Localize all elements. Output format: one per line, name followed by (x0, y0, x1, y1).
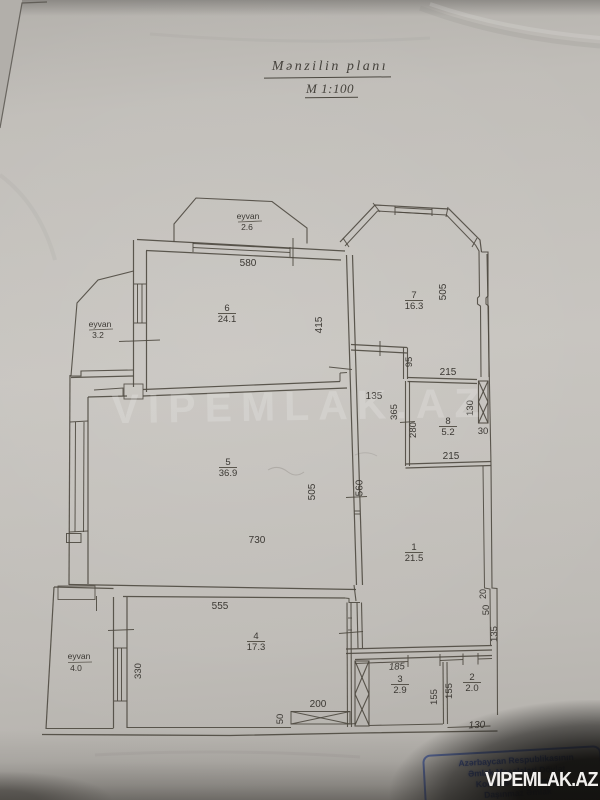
svg-text:6: 6 (224, 303, 229, 314)
svg-text:560: 560 (355, 479, 366, 496)
svg-text:2.0: 2.0 (465, 683, 478, 694)
svg-text:24.1: 24.1 (218, 314, 237, 325)
svg-text:30: 30 (478, 426, 489, 437)
svg-text:555: 555 (212, 601, 229, 612)
svg-text:185: 185 (389, 661, 406, 673)
svg-text:4.0: 4.0 (70, 663, 82, 673)
svg-text:730: 730 (249, 535, 266, 546)
svg-text:5.2: 5.2 (441, 427, 454, 438)
svg-text:2.9: 2.9 (393, 685, 406, 696)
svg-text:5: 5 (225, 457, 230, 468)
svg-text:7: 7 (411, 290, 416, 301)
svg-text:580: 580 (240, 258, 257, 269)
svg-text:3: 3 (397, 674, 402, 685)
svg-text:505: 505 (438, 283, 449, 300)
svg-text:2: 2 (469, 672, 474, 683)
svg-text:36.9: 36.9 (219, 468, 238, 479)
svg-text:330: 330 (133, 663, 144, 679)
svg-text:215: 215 (440, 367, 457, 378)
svg-text:415: 415 (314, 316, 325, 333)
svg-text:eyvan: eyvan (89, 319, 112, 329)
svg-text:50: 50 (275, 714, 286, 725)
svg-text:1: 1 (411, 542, 416, 553)
svg-text:3.2: 3.2 (92, 330, 104, 340)
svg-text:17.3: 17.3 (247, 642, 266, 653)
svg-text:215: 215 (443, 451, 460, 462)
svg-text:200: 200 (310, 699, 327, 710)
svg-text:505: 505 (307, 483, 318, 500)
svg-text:21.5: 21.5 (405, 553, 424, 564)
svg-text:2.6: 2.6 (241, 222, 253, 232)
svg-text:20: 20 (478, 589, 488, 599)
svg-text:16.3: 16.3 (405, 301, 424, 312)
svg-text:155: 155 (444, 683, 455, 699)
svg-text:eyvan: eyvan (68, 651, 91, 661)
svg-text:95: 95 (404, 357, 415, 368)
svg-text:eyvan: eyvan (237, 211, 260, 221)
svg-text:4: 4 (253, 631, 258, 642)
